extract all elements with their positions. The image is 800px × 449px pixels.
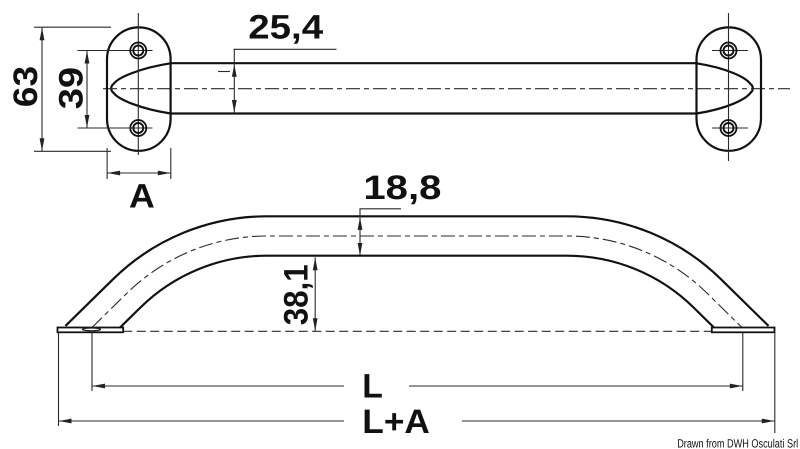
svg-text:38,1: 38,1 bbox=[277, 264, 315, 325]
svg-text:L+A: L+A bbox=[362, 403, 430, 441]
svg-text:63: 63 bbox=[7, 66, 45, 107]
svg-text:L: L bbox=[362, 368, 383, 406]
svg-text:A: A bbox=[129, 177, 155, 215]
svg-text:39: 39 bbox=[53, 67, 91, 109]
svg-text:18,8: 18,8 bbox=[363, 169, 441, 207]
svg-text:25,4: 25,4 bbox=[248, 9, 323, 47]
svg-text:Drawn from DWH Osculati Srl: Drawn from DWH Osculati Srl bbox=[677, 436, 798, 449]
